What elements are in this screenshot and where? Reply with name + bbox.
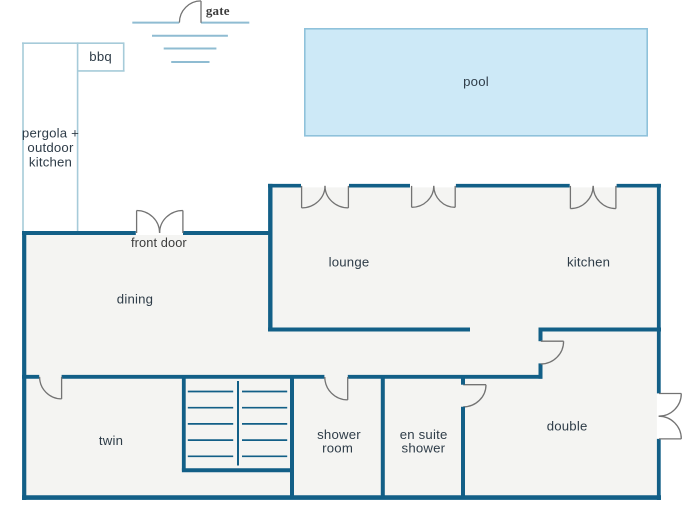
svg-text:front door: front door	[131, 235, 187, 250]
svg-text:pergola +: pergola +	[22, 126, 79, 141]
svg-text:pool: pool	[463, 74, 489, 89]
svg-text:kitchen: kitchen	[29, 155, 72, 170]
svg-text:outdoor: outdoor	[27, 140, 74, 155]
svg-text:room: room	[322, 440, 353, 455]
svg-text:kitchen: kitchen	[567, 254, 610, 269]
svg-text:bbq: bbq	[89, 49, 112, 64]
svg-text:shower: shower	[402, 440, 446, 455]
svg-text:lounge: lounge	[329, 254, 370, 269]
svg-text:double: double	[547, 418, 588, 433]
svg-text:dining: dining	[117, 292, 153, 307]
svg-text:gate: gate	[206, 3, 230, 18]
svg-text:twin: twin	[99, 433, 123, 448]
